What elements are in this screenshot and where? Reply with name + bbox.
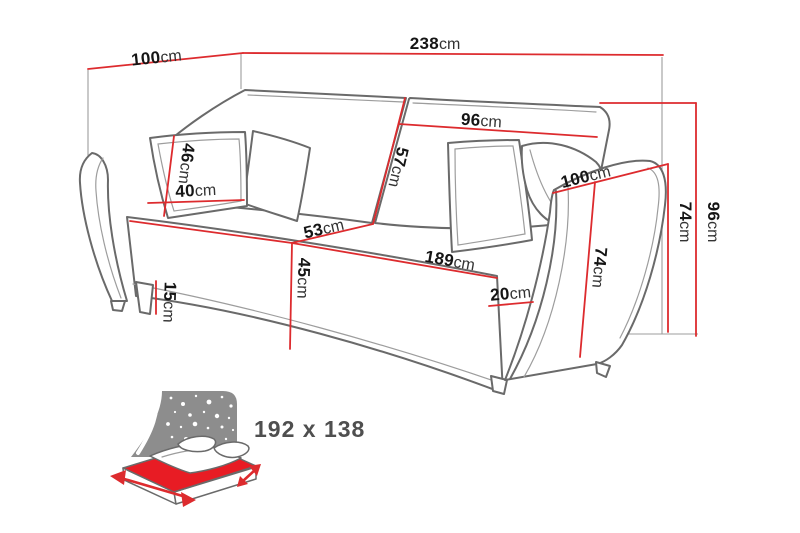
armrest-left	[80, 153, 127, 301]
armrest-right-foot	[596, 362, 610, 377]
dim-label-seat-depth: 53cm	[302, 215, 346, 243]
dim-label-total-width: 238cm	[410, 34, 461, 53]
dim-label-arm-front-width: 20cm	[489, 282, 531, 304]
front-leg-left	[136, 282, 153, 314]
fold-out-bed-icon	[110, 436, 261, 507]
dim-label-back-top-depth: 100cm	[130, 45, 182, 69]
armrest-left-foot	[111, 301, 125, 311]
dim-label-total-height: 96cm	[704, 202, 723, 243]
dim-label-side-height: 74cm	[676, 202, 695, 243]
sofa-illustration: 100cm 238cm 96cm 57cm 46cm 40cm 53cm 189…	[0, 0, 800, 533]
dim-line-total-width	[243, 53, 663, 55]
pillow-left-back	[243, 131, 310, 221]
dim-label-seat-height: 45cm	[293, 257, 313, 298]
dim-label-base-clearance: 15cm	[159, 281, 179, 322]
sleeping-function-icon: 192 x 138	[110, 391, 365, 507]
seat-base	[127, 217, 503, 393]
sleeping-area-size: 192 x 138	[254, 416, 365, 442]
dimension-diagram: 100cm 238cm 96cm 57cm 46cm 40cm 53cm 189…	[0, 0, 800, 533]
dim-label-cushion-width: 40cm	[175, 180, 217, 201]
